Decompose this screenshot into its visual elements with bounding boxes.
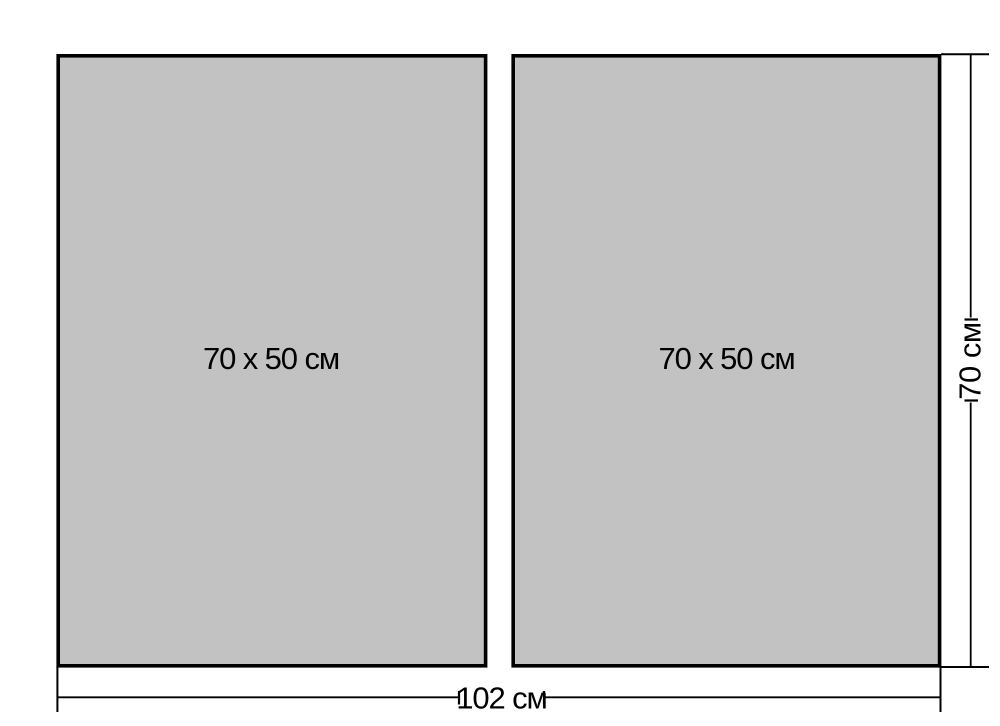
svg-text:70 x 50 см: 70 x 50 см	[203, 341, 339, 376]
svg-text:102 см: 102 см	[456, 681, 547, 716]
svg-text:70 см: 70 см	[953, 322, 988, 399]
svg-text:70 x 50 см: 70 x 50 см	[658, 341, 794, 376]
